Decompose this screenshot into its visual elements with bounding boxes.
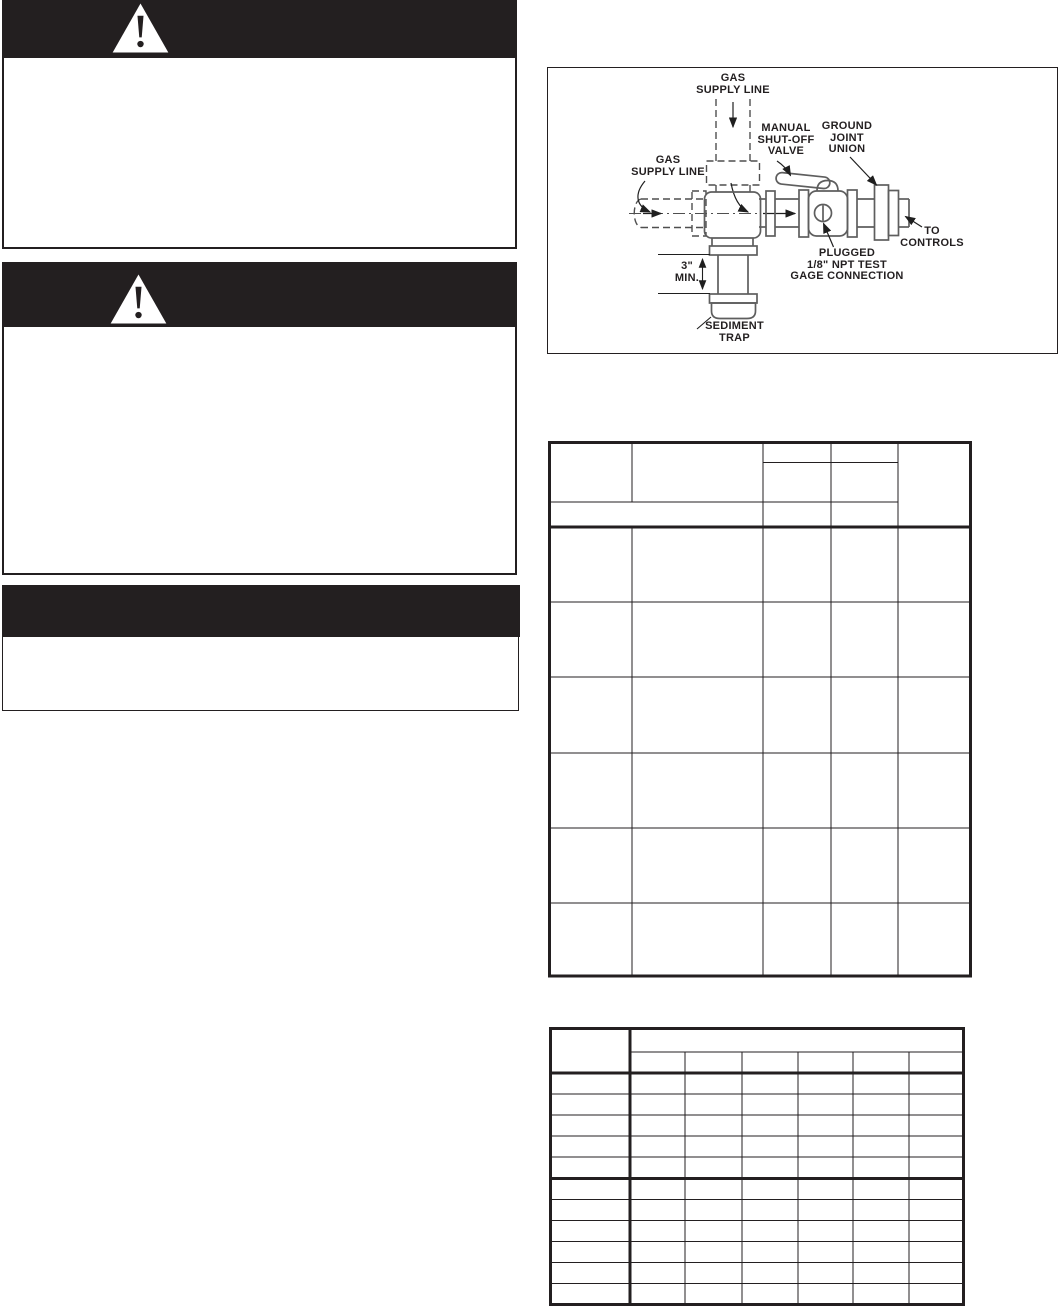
warning-body-2	[4, 329, 515, 573]
table-1-grid	[546, 440, 974, 980]
horizontal-pipe-run	[759, 185, 909, 240]
notice-body	[3, 638, 518, 710]
label-gas-supply-line-left: GAS SUPPLY LINE	[618, 155, 718, 178]
notice-banner	[2, 585, 520, 637]
warning-triangle-icon	[112, 3, 169, 53]
manual-page: GAS SUPPLY LINE MANUAL SHUT-OFF VALVE GR…	[0, 0, 1060, 1309]
label-ground-joint-union: GROUND JOINT UNION	[814, 121, 880, 156]
tee-fitting	[705, 192, 761, 246]
warning-block-1	[2, 0, 517, 249]
warning-block-2	[2, 262, 517, 575]
warning-triangle-icon	[110, 274, 167, 324]
label-to-controls: TO CONTROLS	[896, 226, 968, 249]
warning-body-1	[4, 60, 515, 247]
label-gas-supply-line-top: GAS SUPPLY LINE	[683, 73, 783, 96]
label-3in-min: 3" MIN.	[666, 261, 708, 284]
notice-block	[2, 585, 519, 711]
flow-arrow-curve	[731, 183, 748, 212]
shutoff-valve-handle	[776, 172, 838, 191]
warning-banner-1	[2, 0, 517, 58]
label-plugged-test-gage: PLUGGED 1/8" NPT TEST GAGE CONNECTION	[780, 248, 914, 283]
test-gage-plug	[815, 205, 832, 222]
label-manual-shutoff-valve: MANUAL SHUT-OFF VALVE	[749, 123, 823, 158]
sediment-trap-drawing	[710, 246, 758, 319]
warning-banner-2	[2, 262, 517, 327]
label-sediment-trap: SEDIMENT TRAP	[697, 321, 772, 344]
gas-piping-diagram-art	[547, 67, 1058, 354]
table-2-grid	[548, 1026, 968, 1309]
